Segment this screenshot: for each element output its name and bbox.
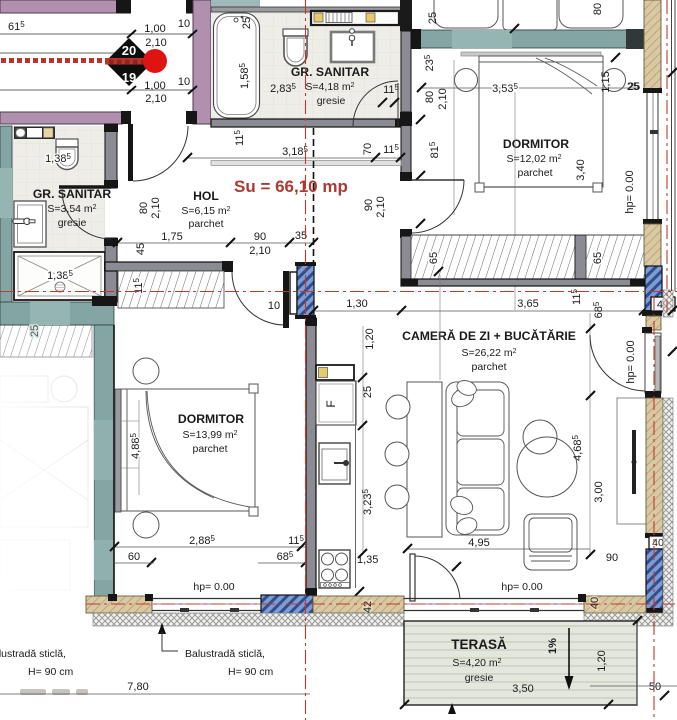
svg-text:90: 90 (606, 552, 618, 564)
svg-text:60: 60 (128, 551, 140, 563)
svg-text:50: 50 (649, 681, 661, 693)
svg-text:hp= 0.00: hp= 0.00 (501, 581, 542, 593)
svg-text:10: 10 (178, 18, 190, 30)
svg-text:1,00: 1,00 (144, 23, 165, 35)
svg-text:S=3,54 m2: S=3,54 m2 (47, 203, 96, 215)
svg-text:S=13,99 m2: S=13,99 m2 (183, 429, 238, 441)
svg-text:S=4,20 m2: S=4,20 m2 (452, 657, 501, 669)
svg-text:gresie: gresie (58, 217, 87, 229)
svg-text:10: 10 (178, 76, 190, 88)
svg-text:S=26,22 m2: S=26,22 m2 (462, 347, 517, 359)
svg-text:1,20: 1,20 (364, 328, 376, 349)
svg-text:7,80: 7,80 (127, 681, 148, 693)
svg-text:90: 90 (363, 199, 375, 211)
svg-text:1,30: 1,30 (346, 298, 367, 310)
svg-text:2,10: 2,10 (249, 245, 270, 257)
svg-text:4,95: 4,95 (468, 537, 489, 549)
svg-text:65: 65 (428, 252, 440, 264)
svg-text:F: F (324, 400, 338, 407)
svg-text:80: 80 (592, 3, 604, 15)
svg-text:65: 65 (592, 252, 604, 264)
svg-text:25: 25 (362, 386, 374, 398)
svg-text:parchet: parchet (192, 443, 227, 455)
svg-text:2,10: 2,10 (375, 196, 387, 217)
svg-text:3,50: 3,50 (512, 683, 533, 695)
svg-text:70: 70 (362, 143, 374, 155)
svg-text:S=6,15 m2: S=6,15 m2 (181, 205, 230, 217)
svg-text:parchet: parchet (517, 167, 552, 179)
svg-text:20: 20 (122, 43, 136, 58)
svg-text:DORMITOR: DORMITOR (178, 412, 244, 426)
svg-text:hp= 0.00: hp= 0.00 (193, 581, 234, 593)
svg-text:1,15: 1,15 (600, 71, 612, 92)
svg-text:S=4,18 m2: S=4,18 m2 (305, 81, 354, 93)
svg-text:HOL: HOL (193, 189, 219, 203)
svg-text:2,10: 2,10 (145, 37, 166, 49)
svg-text:parchet: parchet (471, 361, 506, 373)
svg-text:80: 80 (424, 91, 436, 103)
svg-text:Su = 66,10 mp: Su = 66,10 mp (234, 177, 348, 196)
svg-text:10: 10 (268, 300, 280, 312)
svg-text:40: 40 (589, 597, 601, 609)
svg-text:gresie: gresie (465, 672, 494, 684)
svg-text:CAMERĂ DE ZI + BUCĂTĂRIE: CAMERĂ DE ZI + BUCĂTĂRIE (402, 328, 576, 343)
svg-text:1,75: 1,75 (161, 231, 182, 243)
svg-text:TERASĂ: TERASĂ (451, 637, 507, 652)
svg-text:H= 90 cm: H= 90 cm (28, 666, 73, 678)
svg-text:H= 90 cm: H= 90 cm (228, 666, 273, 678)
svg-text:1%: 1% (547, 638, 559, 654)
svg-text:3,40: 3,40 (575, 159, 587, 180)
svg-text:1,00: 1,00 (144, 80, 165, 92)
svg-text:hp= 0.00: hp= 0.00 (624, 170, 636, 213)
svg-text:GR. SANITAR: GR. SANITAR (33, 187, 112, 201)
svg-text:GR. SANITAR: GR. SANITAR (291, 65, 370, 79)
svg-text:Balustradă sticlă,: Balustradă sticlă, (185, 648, 265, 660)
svg-text:25: 25 (241, 17, 253, 29)
svg-text:3,65: 3,65 (517, 298, 538, 310)
svg-text:25: 25 (628, 81, 640, 93)
svg-text:2,10: 2,10 (145, 93, 166, 105)
svg-text:19: 19 (122, 70, 136, 85)
svg-text:25: 25 (427, 12, 439, 24)
svg-text:45: 45 (135, 243, 147, 255)
svg-text:42: 42 (362, 601, 374, 613)
svg-text:2,10: 2,10 (150, 197, 162, 218)
svg-text:3,00: 3,00 (593, 481, 605, 502)
svg-text:2,10: 2,10 (437, 88, 449, 109)
svg-text:1,20: 1,20 (596, 650, 608, 671)
svg-text:90: 90 (254, 231, 266, 243)
svg-text:80: 80 (138, 202, 150, 214)
svg-text:DORMITOR: DORMITOR (503, 137, 569, 151)
svg-text:Balustradă sticlă,: Balustradă sticlă, (0, 648, 66, 660)
svg-text:hp= 0.00: hp= 0.00 (625, 340, 637, 383)
svg-text:gresie: gresie (317, 95, 346, 107)
svg-text:parchet: parchet (188, 218, 223, 230)
